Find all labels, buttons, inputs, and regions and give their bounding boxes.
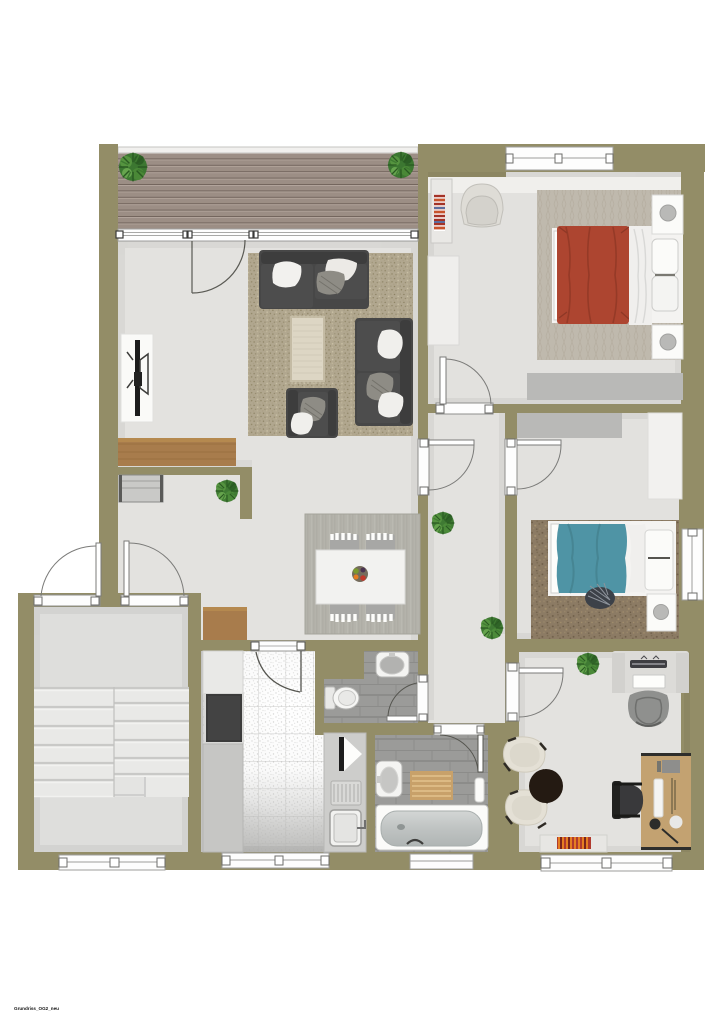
svg-text:Grundriss_OG2_neu: Grundriss_OG2_neu: [14, 1006, 59, 1011]
